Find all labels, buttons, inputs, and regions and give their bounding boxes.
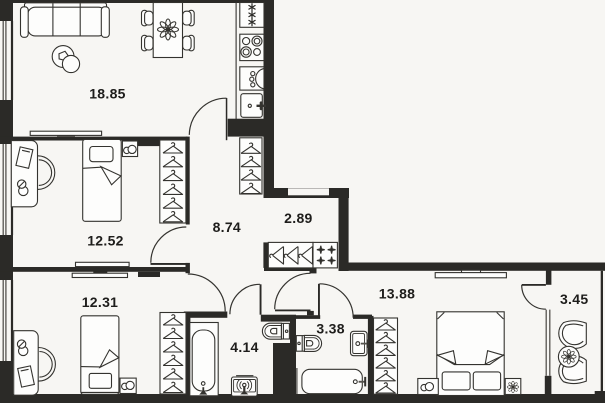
svg-text:2.89: 2.89 [284, 210, 312, 226]
svg-text:12.31: 12.31 [82, 294, 119, 310]
svg-text:8.74: 8.74 [213, 219, 241, 235]
svg-text:18.85: 18.85 [89, 86, 126, 102]
svg-text:13.88: 13.88 [379, 285, 416, 301]
svg-text:4.14: 4.14 [230, 339, 258, 355]
svg-text:3.38: 3.38 [316, 320, 344, 336]
svg-text:3.45: 3.45 [560, 291, 588, 307]
svg-text:12.52: 12.52 [87, 233, 124, 249]
